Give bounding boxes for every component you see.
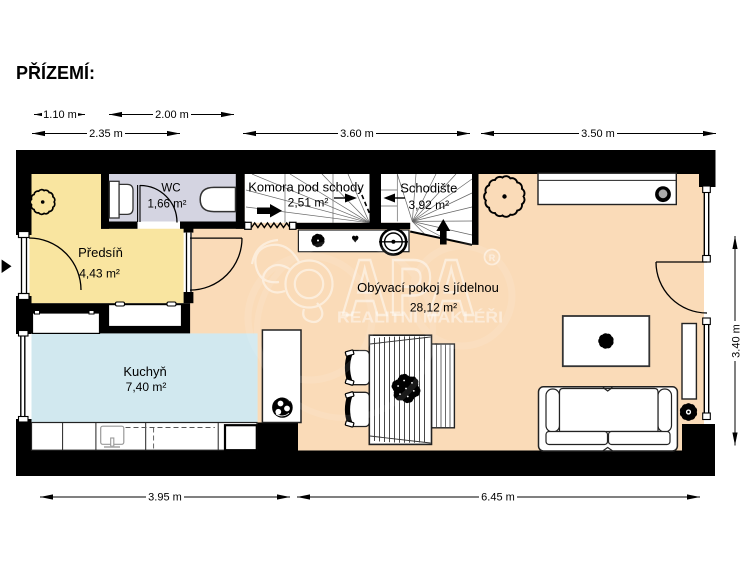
svg-text:R: R — [489, 253, 496, 263]
svg-text:3.95 m: 3.95 m — [148, 492, 182, 504]
svg-text:2.00 m: 2.00 m — [155, 109, 189, 121]
svg-text:3.60 m: 3.60 m — [340, 128, 374, 140]
svg-text:3,92 m²: 3,92 m² — [408, 198, 449, 212]
svg-text:2,51 m²: 2,51 m² — [288, 196, 329, 210]
svg-text:Obývací pokoj s jídelnou: Obývací pokoj s jídelnou — [357, 280, 499, 295]
svg-text:4,43 m²: 4,43 m² — [79, 267, 120, 281]
svg-text:Předsíň: Předsíň — [78, 245, 123, 260]
svg-text:3.40 m: 3.40 m — [731, 324, 743, 358]
svg-text:Kuchyň: Kuchyň — [123, 364, 166, 379]
svg-text:Komora pod schody: Komora pod schody — [248, 180, 364, 195]
svg-text:28,12 m²: 28,12 m² — [410, 301, 457, 315]
svg-text:Schodište: Schodište — [400, 181, 457, 196]
svg-text:WC: WC — [161, 183, 180, 195]
svg-text:1.10 m: 1.10 m — [43, 109, 77, 121]
svg-text:3.50 m: 3.50 m — [581, 128, 615, 140]
svg-text:2.35 m: 2.35 m — [89, 128, 123, 140]
svg-text:6.45 m: 6.45 m — [481, 492, 515, 504]
svg-text:1,66 m²: 1,66 m² — [148, 199, 187, 211]
svg-text:PŘÍZEMÍ:: PŘÍZEMÍ: — [16, 62, 95, 83]
svg-text:7,40 m²: 7,40 m² — [126, 380, 167, 394]
